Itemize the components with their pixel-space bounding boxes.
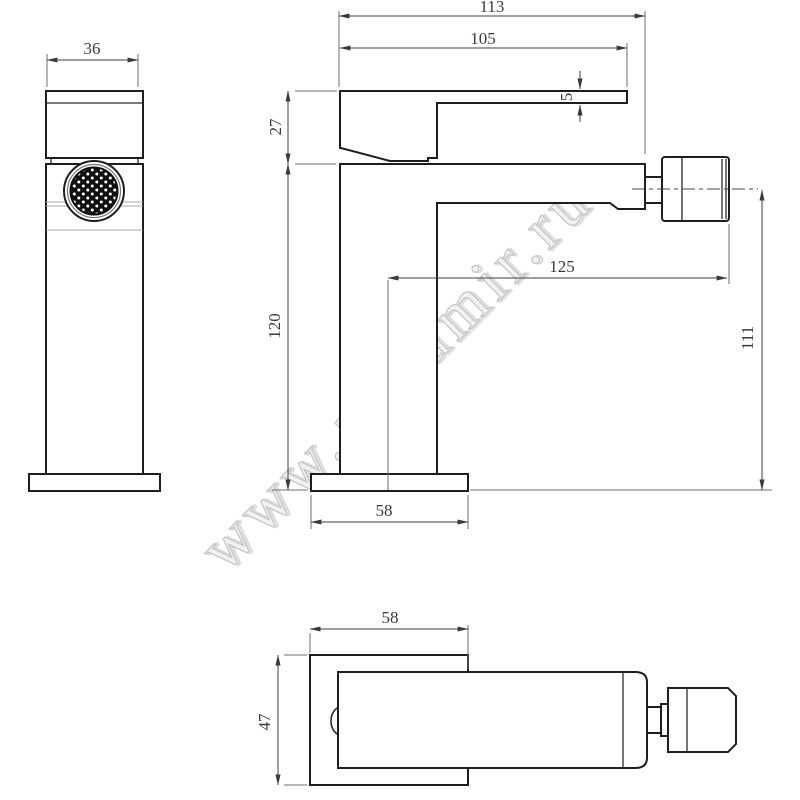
dim-base-width-top-label: 47 bbox=[255, 713, 274, 731]
top-body-lever bbox=[338, 672, 647, 768]
top-nozzle bbox=[668, 688, 736, 752]
dim-front-width-label: 36 bbox=[84, 39, 101, 58]
dim-lever-thickness-label: 5 bbox=[557, 93, 576, 102]
top-outlet-neck bbox=[647, 707, 661, 733]
front-base-plate bbox=[29, 474, 160, 491]
dim-base-depth-top-label: 58 bbox=[382, 608, 399, 627]
technical-drawing-page: www.aquamir.ru www.aquamir.ru 36 bbox=[0, 0, 800, 800]
dim-handle-length-label: 105 bbox=[470, 29, 496, 48]
dim-outlet-height-label: 111 bbox=[738, 326, 757, 350]
faucet-drawing-canvas: www.aquamir.ru www.aquamir.ru 36 bbox=[0, 0, 800, 800]
side-base-plate bbox=[311, 474, 468, 491]
dim-spout-reach-label: 125 bbox=[549, 257, 575, 276]
dim-body-height-label: 120 bbox=[265, 313, 284, 339]
side-outlet-connector bbox=[645, 177, 662, 203]
front-handle bbox=[46, 91, 143, 158]
dim-total-length-label: 113 bbox=[480, 0, 505, 16]
dim-base-depth-side-label: 58 bbox=[376, 501, 393, 520]
aerator-icon bbox=[64, 161, 124, 221]
front-view: 36 bbox=[29, 39, 160, 491]
dim-handle-height-label: 27 bbox=[266, 118, 285, 136]
